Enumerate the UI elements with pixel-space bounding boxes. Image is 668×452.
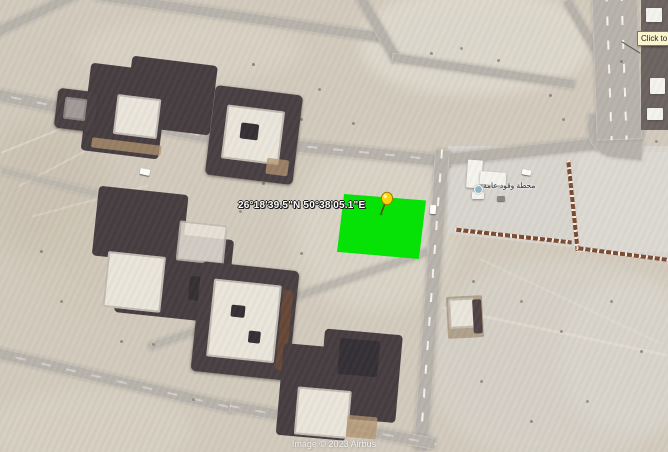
placemark-coordinates-label: 26°18'39.5"N 50°38'05.1"E <box>238 200 365 211</box>
satellite-map-canvas[interactable]: 26°18'39.5"N 50°38'05.1"E محطة وقود عامة… <box>0 0 668 452</box>
car <box>430 205 437 214</box>
courtyard <box>176 220 228 265</box>
building-roof-light <box>650 78 665 94</box>
imagery-attribution: Image © 2023 Airbus <box>0 439 668 449</box>
building-roof-light <box>646 8 662 22</box>
small-building <box>446 295 484 339</box>
compound-interior <box>578 152 668 252</box>
click-tooltip: Click to <box>637 31 668 46</box>
building <box>54 88 99 133</box>
building-roof-light <box>647 108 663 120</box>
roof-detail <box>239 122 259 140</box>
pushpin-icon[interactable] <box>374 191 396 222</box>
building-cluster <box>80 51 218 170</box>
poi-dot-icon[interactable] <box>474 185 483 194</box>
roof-detail <box>248 330 261 343</box>
building-edge <box>346 415 378 440</box>
courtyard <box>294 386 352 439</box>
lane-markings <box>620 0 627 140</box>
car <box>497 196 505 201</box>
highway <box>591 0 642 141</box>
building <box>205 85 303 185</box>
courtyard <box>113 94 162 139</box>
courtyard <box>102 251 166 313</box>
building-roof-light <box>206 279 282 364</box>
shrub-speckles <box>252 63 255 66</box>
poi-arabic-label[interactable]: محطة وقود عامة <box>483 181 535 190</box>
building-edge <box>265 158 289 177</box>
lane-markings <box>605 0 612 140</box>
car <box>139 168 150 176</box>
building-cluster <box>275 325 403 451</box>
roadside-buildings <box>641 0 668 130</box>
road-segment <box>0 0 93 42</box>
courtyard <box>63 97 88 122</box>
roof-detail <box>337 338 380 377</box>
roof-detail <box>230 305 245 318</box>
roof-shadow <box>472 299 483 333</box>
